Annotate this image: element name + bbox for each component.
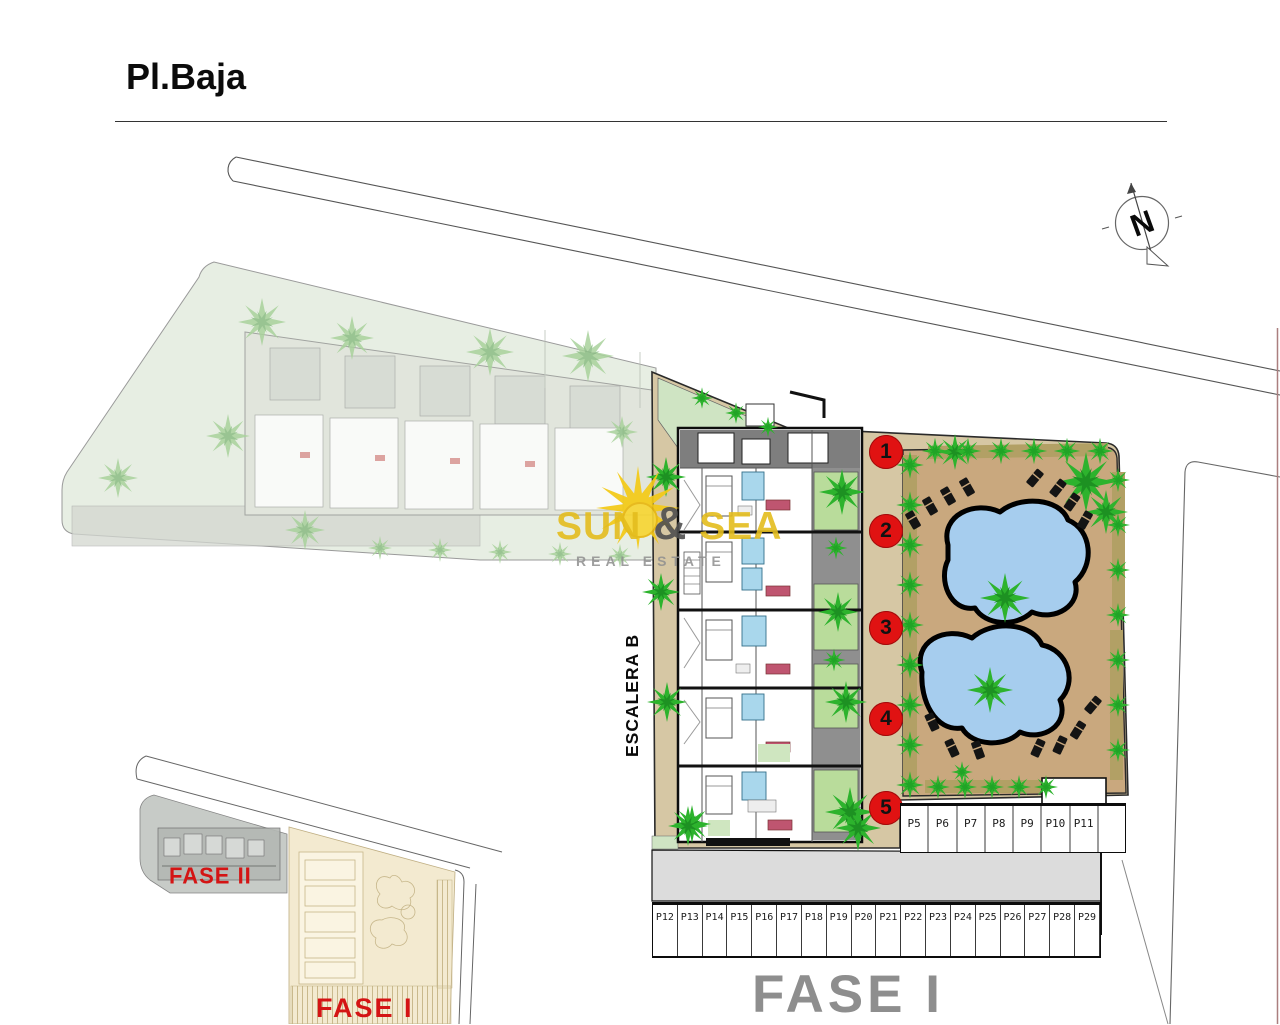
parking-stall: P28 <box>1050 905 1075 956</box>
watermark-tagline: REAL ESTATE <box>576 553 726 569</box>
parking-stall <box>1099 806 1125 852</box>
tree <box>330 316 374 360</box>
tree <box>647 682 687 722</box>
parking-stall: P17 <box>777 905 802 956</box>
north-compass: N <box>1102 183 1182 266</box>
watermark-word1: SUN <box>556 505 641 548</box>
tree <box>668 806 708 846</box>
tree <box>691 387 713 409</box>
parking-stall: P27 <box>1025 905 1050 956</box>
unit-marker-4: 4 <box>869 702 903 736</box>
parking-stall: P25 <box>976 905 1001 956</box>
tree <box>98 458 138 498</box>
road-right <box>1170 328 1280 1024</box>
watermark-title: SUN & SEA <box>556 496 782 550</box>
tree <box>980 573 1030 623</box>
watermark-word2: SEA <box>699 505 782 548</box>
tree <box>896 771 924 799</box>
parking-stall: P14 <box>703 905 728 956</box>
unit-marker-5: 5 <box>869 791 903 825</box>
parking-stall: P22 <box>901 905 926 956</box>
tree <box>896 731 924 759</box>
parking-row-upper: P5P6P7P8P9P10P11 <box>900 803 1126 853</box>
parking-stall: P7 <box>958 806 986 852</box>
parking-stall: P16 <box>752 905 777 956</box>
parking-stall: P9 <box>1014 806 1042 852</box>
tree <box>896 651 924 679</box>
pool-garden <box>903 443 1126 806</box>
page-title: Pl.Baja <box>126 56 246 98</box>
parking-stall: P10 <box>1042 806 1070 852</box>
parking-stall: P13 <box>678 905 703 956</box>
unit-marker-2: 2 <box>869 514 903 548</box>
tree <box>818 592 858 632</box>
parking-stall: P26 <box>1001 905 1026 956</box>
parking-row-lower: P12P13P14P15P16P17P18P19P20P21P22P23P24P… <box>652 902 1101 958</box>
title-underline <box>115 121 1167 122</box>
minimap <box>136 756 502 1024</box>
parking-stall: P6 <box>929 806 957 852</box>
compass-letter: N <box>1126 203 1159 244</box>
tree <box>951 761 973 783</box>
tree <box>642 573 680 611</box>
tree <box>206 414 250 458</box>
parking-stall: P23 <box>926 905 951 956</box>
parking-stall: P21 <box>876 905 901 956</box>
parking-stall: P5 <box>901 806 929 852</box>
tree <box>725 402 747 424</box>
parking-stall: P18 <box>802 905 827 956</box>
watermark-ampersand: & <box>653 497 687 549</box>
unit-marker-3: 3 <box>869 611 903 645</box>
site-plan-page: { "page": { "title": "Pl.Baja" }, "compa… <box>0 0 1280 1024</box>
parking-stall: P11 <box>1071 806 1099 852</box>
minimap-label-fase1: FASE I <box>316 993 414 1024</box>
minimap-label-fase2: FASE II <box>169 862 252 889</box>
tree <box>285 510 325 550</box>
parking-stall: P19 <box>827 905 852 956</box>
parking-stall: P24 <box>951 905 976 956</box>
pool-upper <box>944 501 1088 622</box>
tree <box>466 328 514 376</box>
stair-label: ESCALERA B <box>622 634 643 757</box>
unit-marker-1: 1 <box>869 435 903 469</box>
parking-stall: P20 <box>852 905 877 956</box>
tree <box>967 667 1013 713</box>
parking-stall: P15 <box>727 905 752 956</box>
parking-stall: P29 <box>1075 905 1100 956</box>
parking-stall: P12 <box>653 905 678 956</box>
parking-stall: P8 <box>986 806 1014 852</box>
phase-label-fase1: FASE I <box>648 964 1048 1025</box>
tree <box>896 571 924 599</box>
